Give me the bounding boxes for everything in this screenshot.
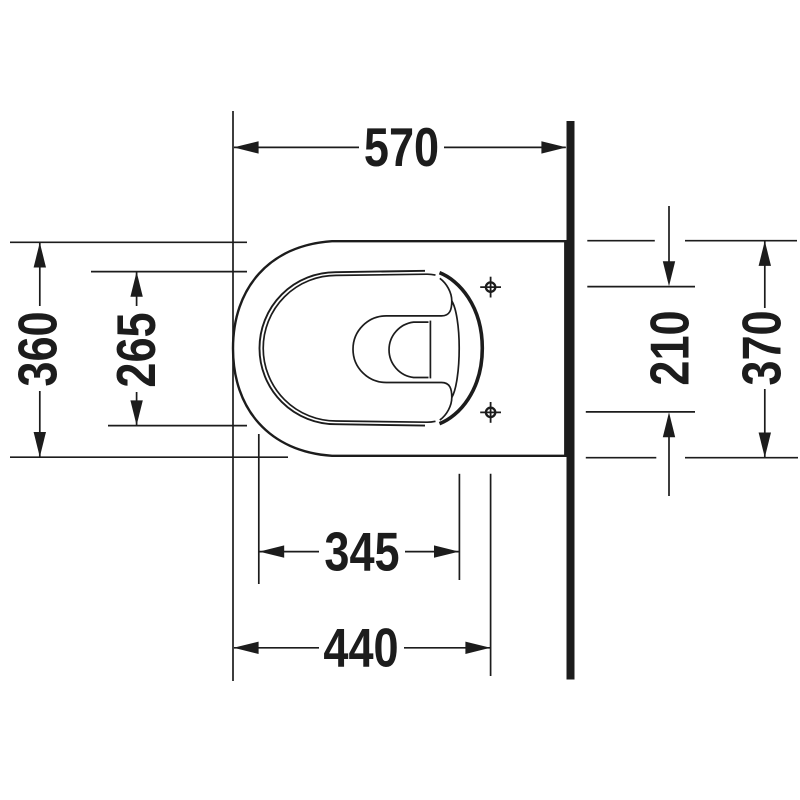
svg-text:265: 265 [105, 312, 167, 387]
svg-text:570: 570 [364, 116, 439, 178]
svg-text:345: 345 [324, 520, 399, 582]
svg-text:360: 360 [6, 311, 68, 386]
svg-text:440: 440 [323, 616, 398, 678]
svg-text:370: 370 [730, 310, 792, 385]
svg-text:210: 210 [638, 310, 700, 385]
